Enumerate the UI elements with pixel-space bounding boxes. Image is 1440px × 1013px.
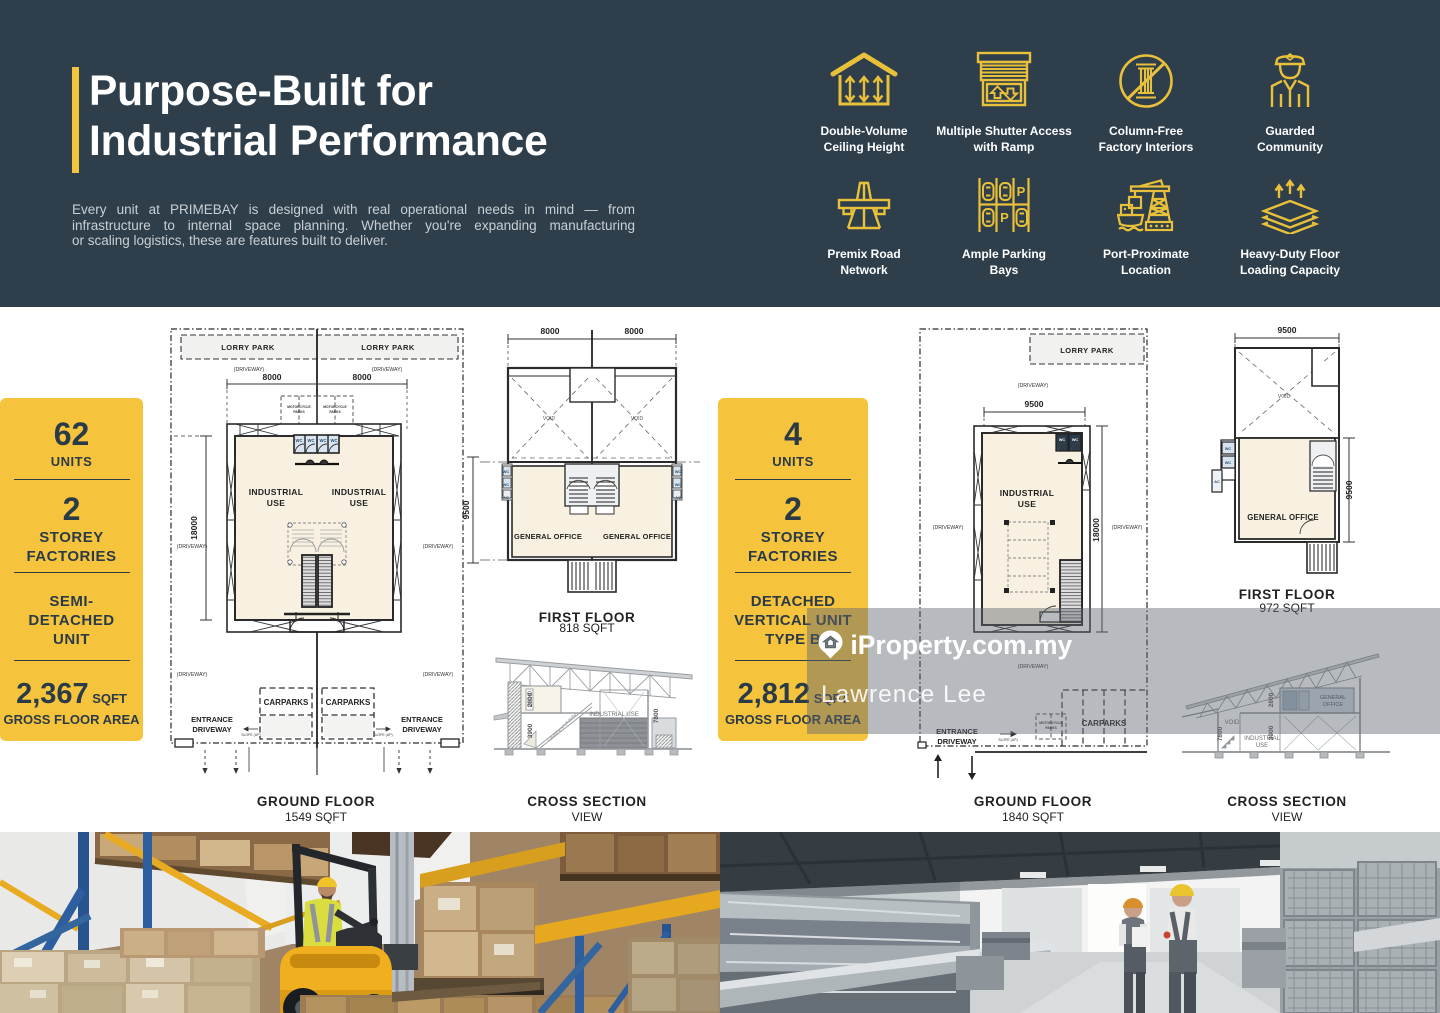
svg-text:DRIVEWAY: DRIVEWAY <box>402 725 441 734</box>
svg-text:ENTRANCE: ENTRANCE <box>401 715 443 724</box>
svg-text:USE: USE <box>350 498 368 508</box>
svg-text:9500: 9500 <box>1278 325 1297 335</box>
svg-text:(DRIVEWAY): (DRIVEWAY) <box>177 672 208 678</box>
svg-text:(DRIVEWAY): (DRIVEWAY) <box>372 367 403 373</box>
svg-text:SLOPE (UP): SLOPE (UP) <box>998 738 1017 742</box>
svg-text:WC: WC <box>331 438 338 443</box>
svg-text:USE: USE <box>1256 743 1268 749</box>
svg-text:3900: 3900 <box>527 723 534 738</box>
svg-text:USE: USE <box>1018 499 1036 509</box>
svg-text:GENERAL OFFICE: GENERAL OFFICE <box>514 532 582 541</box>
svg-text:8000: 8000 <box>541 326 560 336</box>
svg-text:(DRIVEWAY): (DRIVEWAY) <box>1112 525 1143 531</box>
svg-text:WC: WC <box>1072 438 1079 442</box>
svg-text:18000: 18000 <box>1091 518 1101 542</box>
svg-text:WC: WC <box>675 470 682 474</box>
svg-text:LORRY PARK: LORRY PARK <box>1060 346 1114 355</box>
svg-text:7800: 7800 <box>653 708 660 723</box>
svg-text:ENTRANCE: ENTRANCE <box>191 715 233 724</box>
svg-text:GROUND FLOOR: GROUND FLOOR <box>974 794 1092 809</box>
svg-text:2800: 2800 <box>527 692 534 707</box>
svg-text:GROUND FLOOR: GROUND FLOOR <box>257 794 375 809</box>
svg-text:DRIVEWAY: DRIVEWAY <box>937 737 976 746</box>
svg-text:WC: WC <box>503 483 510 487</box>
svg-text:PARKS: PARKS <box>329 410 341 414</box>
svg-text:9500: 9500 <box>1025 399 1044 409</box>
svg-text:WC: WC <box>308 438 315 443</box>
svg-text:8000: 8000 <box>353 372 372 382</box>
svg-text:(DRIVEWAY): (DRIVEWAY) <box>423 544 454 550</box>
svg-text:VIEW: VIEW <box>1272 810 1303 824</box>
svg-text:1549 SQFT: 1549 SQFT <box>285 810 348 824</box>
svg-text:DRIVEWAY: DRIVEWAY <box>192 725 231 734</box>
svg-text:USE: USE <box>267 498 285 508</box>
svg-text:WC: WC <box>503 470 510 474</box>
svg-text:(DRIVEWAY): (DRIVEWAY) <box>177 544 208 550</box>
svg-text:AC: AC <box>675 496 681 500</box>
svg-text:AC: AC <box>1214 480 1220 484</box>
svg-text:WC: WC <box>1059 438 1066 442</box>
svg-text:(DRIVEWAY): (DRIVEWAY) <box>234 367 265 373</box>
svg-text:INDUSTRIAL: INDUSTRIAL <box>249 487 303 497</box>
svg-text:9500: 9500 <box>461 500 471 519</box>
svg-text:1840 SQFT: 1840 SQFT <box>1002 810 1065 824</box>
svg-text:WC: WC <box>296 438 303 443</box>
svg-text:CARPARKS: CARPARKS <box>326 698 371 707</box>
svg-text:8000: 8000 <box>625 326 644 336</box>
svg-text:WC: WC <box>320 438 327 443</box>
svg-text:818 SQFT: 818 SQFT <box>559 621 615 635</box>
svg-text:(DRIVEWAY): (DRIVEWAY) <box>1018 383 1049 389</box>
svg-text:MOTORCYCLE: MOTORCYCLE <box>287 405 311 409</box>
svg-text:(DRIVEWAY): (DRIVEWAY) <box>933 525 964 531</box>
svg-text:WC: WC <box>675 483 682 487</box>
svg-text:CROSS SECTION: CROSS SECTION <box>1227 794 1347 809</box>
svg-text:GENERAL OFFICE: GENERAL OFFICE <box>1247 513 1319 522</box>
svg-text:VOID: VOID <box>543 416 556 422</box>
svg-text:P: P <box>1017 184 1026 199</box>
svg-text:INDUSTRIAL: INDUSTRIAL <box>1000 488 1054 498</box>
svg-text:18000: 18000 <box>189 516 199 540</box>
svg-text:INDUSTRIAL: INDUSTRIAL <box>332 487 386 497</box>
svg-text:8000: 8000 <box>263 372 282 382</box>
svg-text:SLOPE (UP): SLOPE (UP) <box>373 733 392 737</box>
svg-text:P: P <box>1000 210 1009 225</box>
svg-text:CROSS SECTION: CROSS SECTION <box>527 794 647 809</box>
svg-text:9500: 9500 <box>1344 480 1354 499</box>
svg-text:(DRIVEWAY): (DRIVEWAY) <box>423 672 454 678</box>
svg-text:LORRY PARK: LORRY PARK <box>221 343 275 352</box>
svg-text:LORRY PARK: LORRY PARK <box>361 343 415 352</box>
svg-text:VIEW: VIEW <box>572 810 603 824</box>
svg-text:WC: WC <box>1225 447 1232 451</box>
svg-text:GENERAL OFFICE: GENERAL OFFICE <box>603 532 671 541</box>
svg-text:WC: WC <box>1225 461 1232 465</box>
svg-text:SLOPE (UP): SLOPE (UP) <box>241 733 260 737</box>
svg-text:FIRST FLOOR: FIRST FLOOR <box>1239 587 1336 602</box>
svg-text:MOTORCYCLE: MOTORCYCLE <box>323 405 347 409</box>
svg-text:VOID: VOID <box>631 416 644 422</box>
svg-text:VOID: VOID <box>1278 394 1291 400</box>
svg-text:PARKS: PARKS <box>293 410 305 414</box>
svg-text:INDUSTRIAL USE: INDUSTRIAL USE <box>589 712 638 718</box>
svg-text:AC: AC <box>503 496 509 500</box>
svg-text:INDUSTRIAL: INDUSTRIAL <box>1244 736 1280 742</box>
svg-text:CARPARKS: CARPARKS <box>264 698 309 707</box>
